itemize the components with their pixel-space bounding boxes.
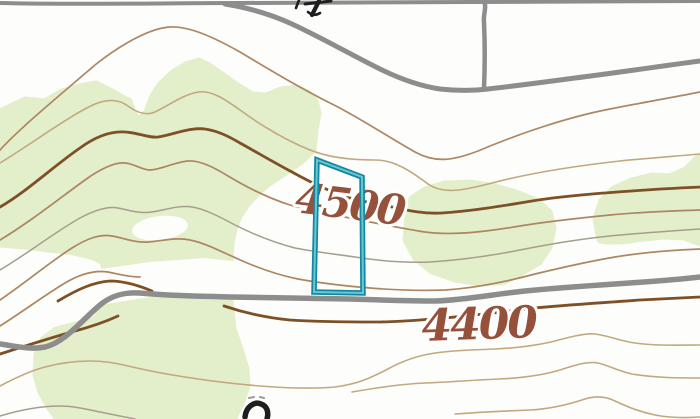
topo-map-svg: 4500 4400 [0,0,700,419]
elevation-label-4400: 4400 [421,297,540,352]
map-canvas[interactable]: 4500 4400 [0,0,700,419]
road-vertical-branch [484,0,485,88]
